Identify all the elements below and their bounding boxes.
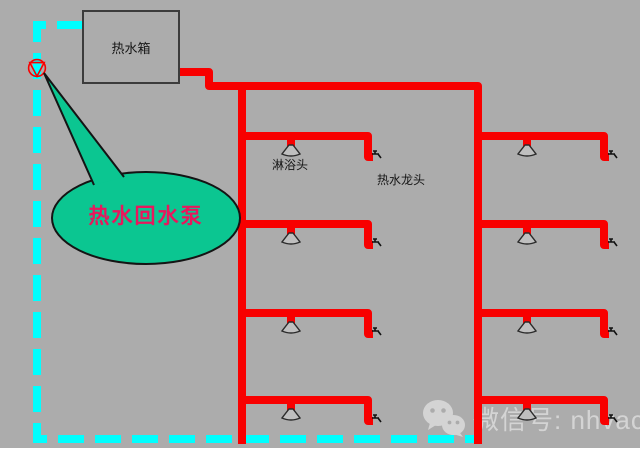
faucet-icon <box>608 415 617 422</box>
tank-label: 热水箱 <box>111 38 150 57</box>
shower-label: 淋浴头 <box>272 156 308 173</box>
slide: 微信号: nhvaca <box>0 0 640 455</box>
supply-main-pipe <box>175 72 478 444</box>
branch-pipe <box>242 313 373 334</box>
faucet-icon <box>608 151 617 158</box>
faucet-icon <box>372 415 381 422</box>
branch-pipe <box>242 224 373 245</box>
callout-tail <box>44 73 124 185</box>
branch-pipe <box>242 400 373 421</box>
faucet-icon <box>372 239 381 246</box>
hot-water-tank: 热水箱 <box>82 10 180 84</box>
faucet-icon <box>608 239 617 246</box>
branch-pipe <box>478 400 609 421</box>
faucet-icon <box>372 328 381 335</box>
faucet-icon <box>608 328 617 335</box>
faucet-label: 热水龙头 <box>377 171 425 188</box>
branch-pipe <box>478 313 609 334</box>
branch-pipe <box>478 224 609 245</box>
branch-pipe <box>242 136 373 157</box>
faucet-icon <box>372 151 381 158</box>
branch-pipe <box>478 136 609 157</box>
callout-label: 热水回水泵 <box>52 200 240 230</box>
